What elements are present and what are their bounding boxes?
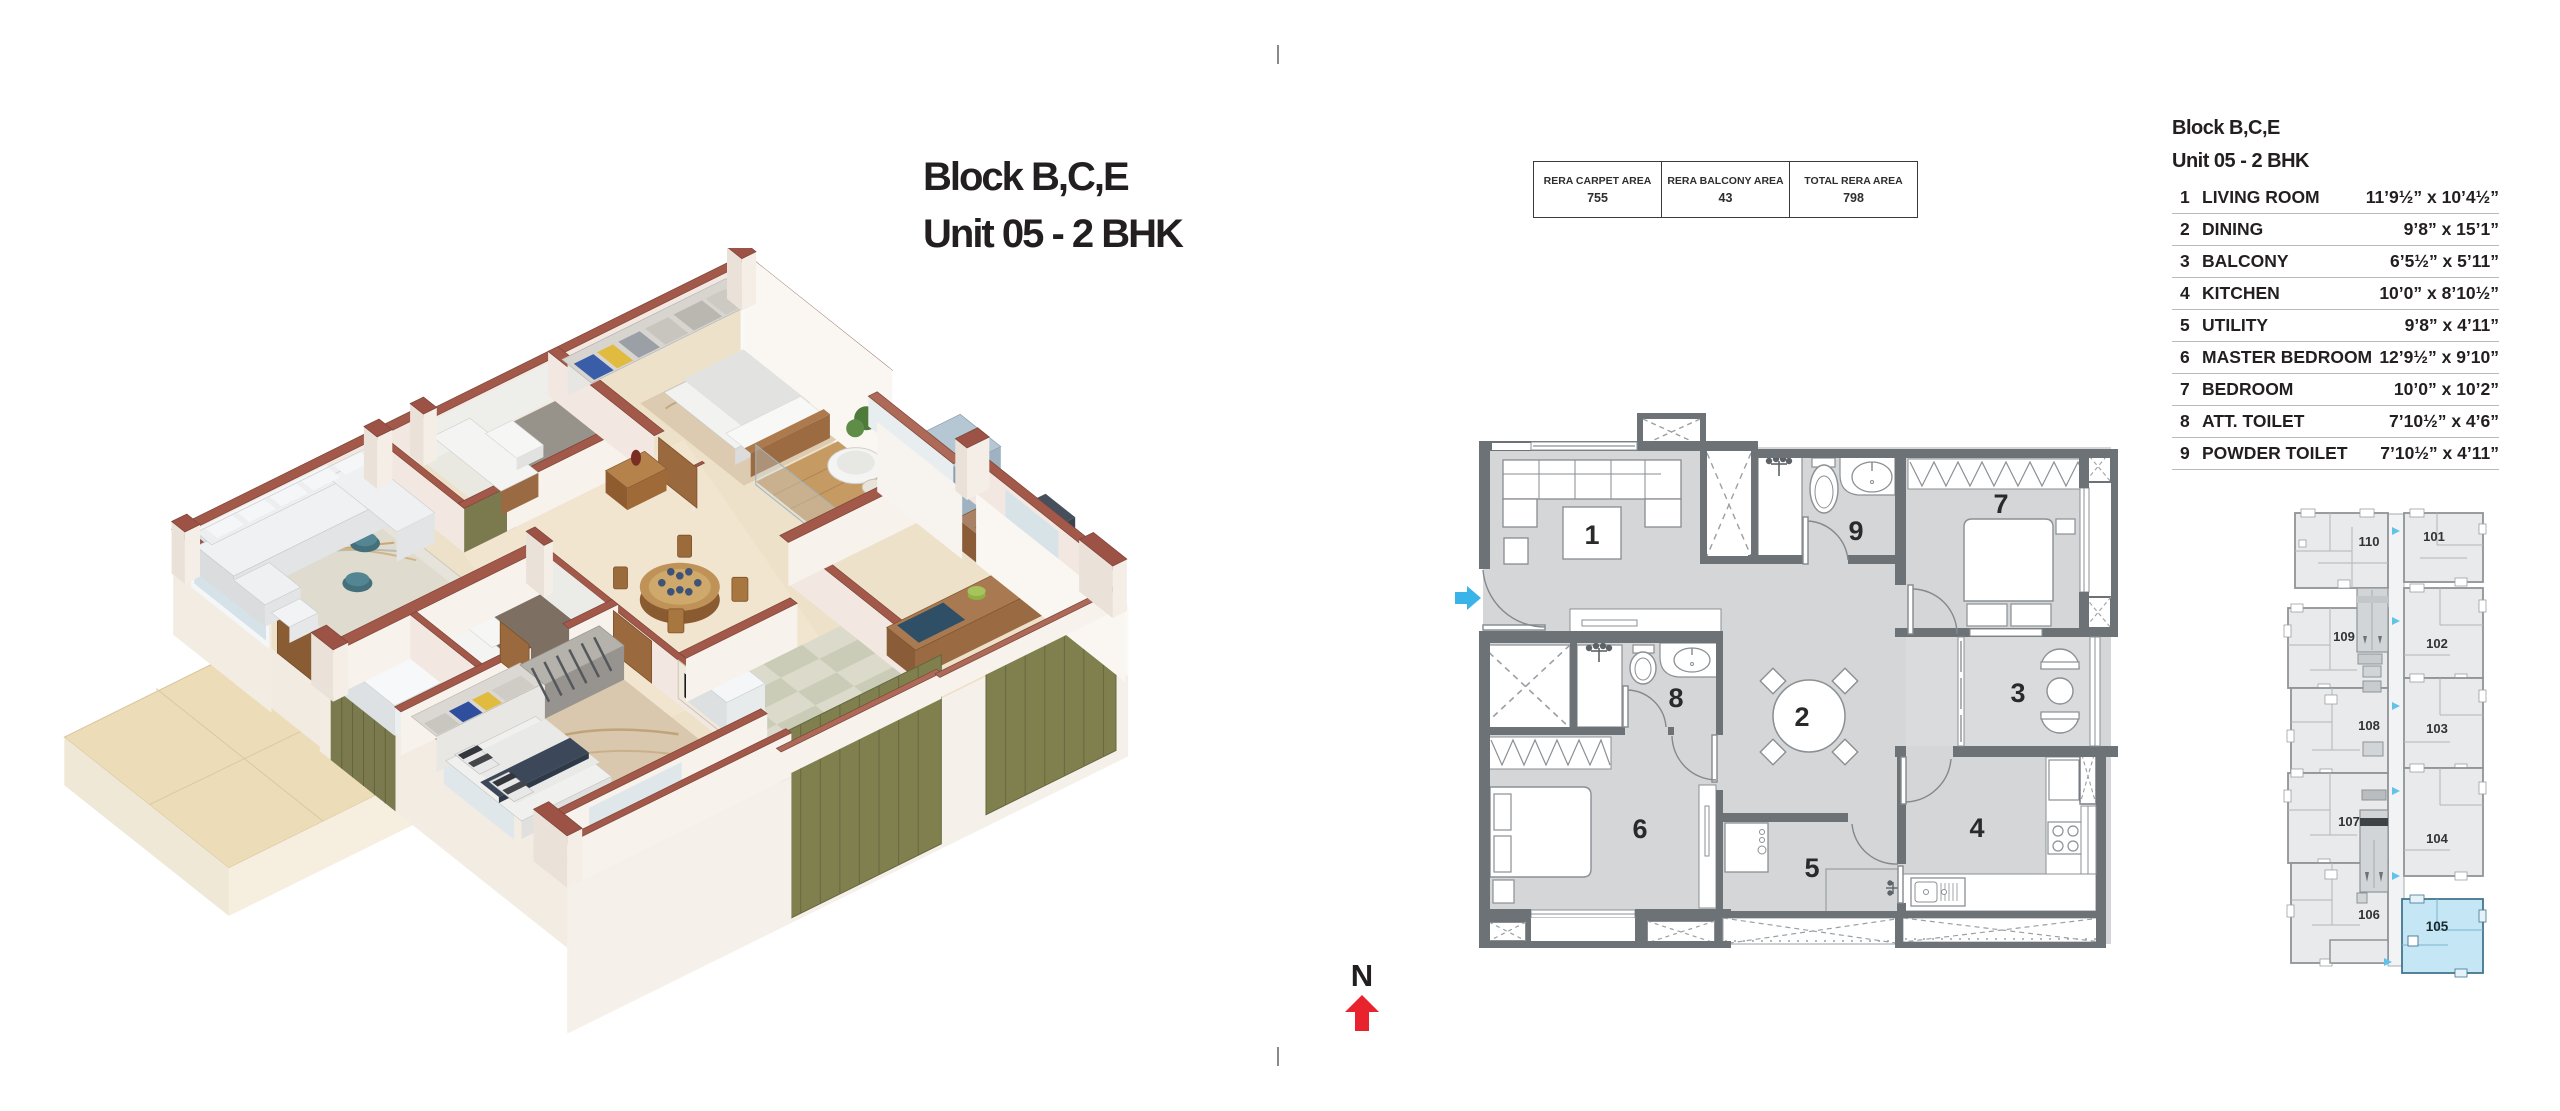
svg-text:101: 101 [2423,529,2445,544]
svg-text:109: 109 [2333,629,2355,644]
svg-text:3: 3 [2010,678,2025,708]
svg-text:7: 7 [1993,489,2008,519]
svg-text:110: 110 [2359,534,2380,549]
svg-text:1: 1 [1584,520,1599,550]
svg-text:104: 104 [2426,831,2448,846]
svg-text:108: 108 [2358,718,2380,733]
svg-text:5: 5 [1804,853,1819,883]
svg-text:4: 4 [1969,813,1984,843]
svg-text:105: 105 [2426,919,2449,934]
svg-text:103: 103 [2426,721,2448,736]
svg-text:102: 102 [2426,636,2448,651]
svg-text:107: 107 [2338,814,2360,829]
svg-text:106: 106 [2358,907,2380,922]
svg-text:9: 9 [1848,516,1863,546]
svg-text:8: 8 [1668,683,1683,713]
svg-text:6: 6 [1632,814,1647,844]
svg-text:2: 2 [1794,702,1809,732]
